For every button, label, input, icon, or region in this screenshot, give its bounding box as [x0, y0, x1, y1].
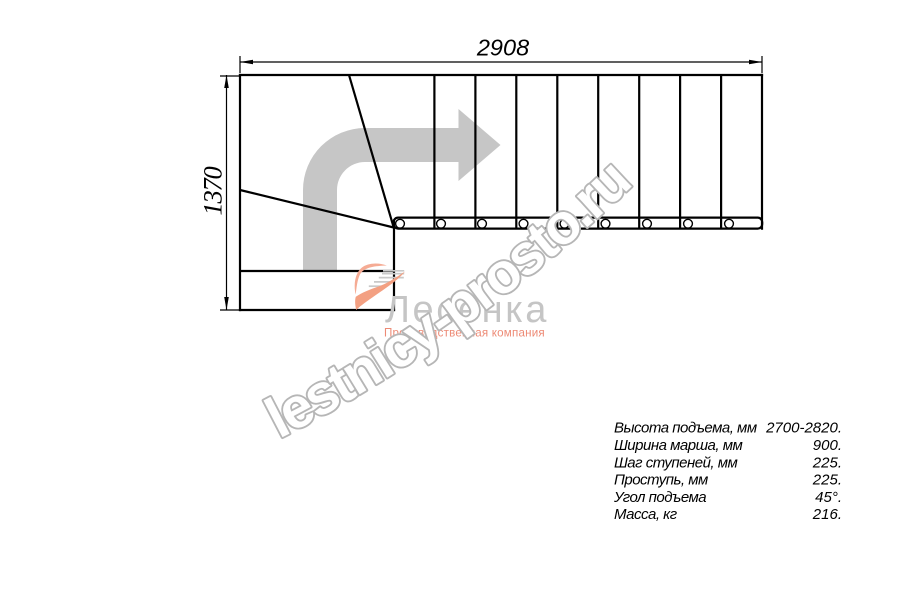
- svg-text:1370: 1370: [198, 166, 228, 215]
- svg-text:45°.: 45°.: [815, 489, 842, 506]
- svg-text:Высота подъема, мм: Высота подъема, мм: [614, 420, 757, 437]
- svg-text:2908: 2908: [476, 35, 529, 61]
- svg-text:Шаг ступеней, мм: Шаг ступеней, мм: [614, 454, 738, 471]
- svg-text:Проступь, мм: Проступь, мм: [614, 472, 708, 489]
- svg-text:Ширина марша, мм: Ширина марша, мм: [614, 437, 742, 454]
- svg-text:2700-2820.: 2700-2820.: [765, 420, 842, 437]
- svg-text:225.: 225.: [812, 472, 842, 489]
- svg-text:225.: 225.: [812, 454, 842, 471]
- svg-text:900.: 900.: [813, 437, 842, 454]
- svg-text:Масса, кг: Масса, кг: [614, 506, 678, 523]
- svg-text:Угол подъема: Угол подъема: [613, 489, 706, 506]
- svg-text:216.: 216.: [812, 506, 842, 523]
